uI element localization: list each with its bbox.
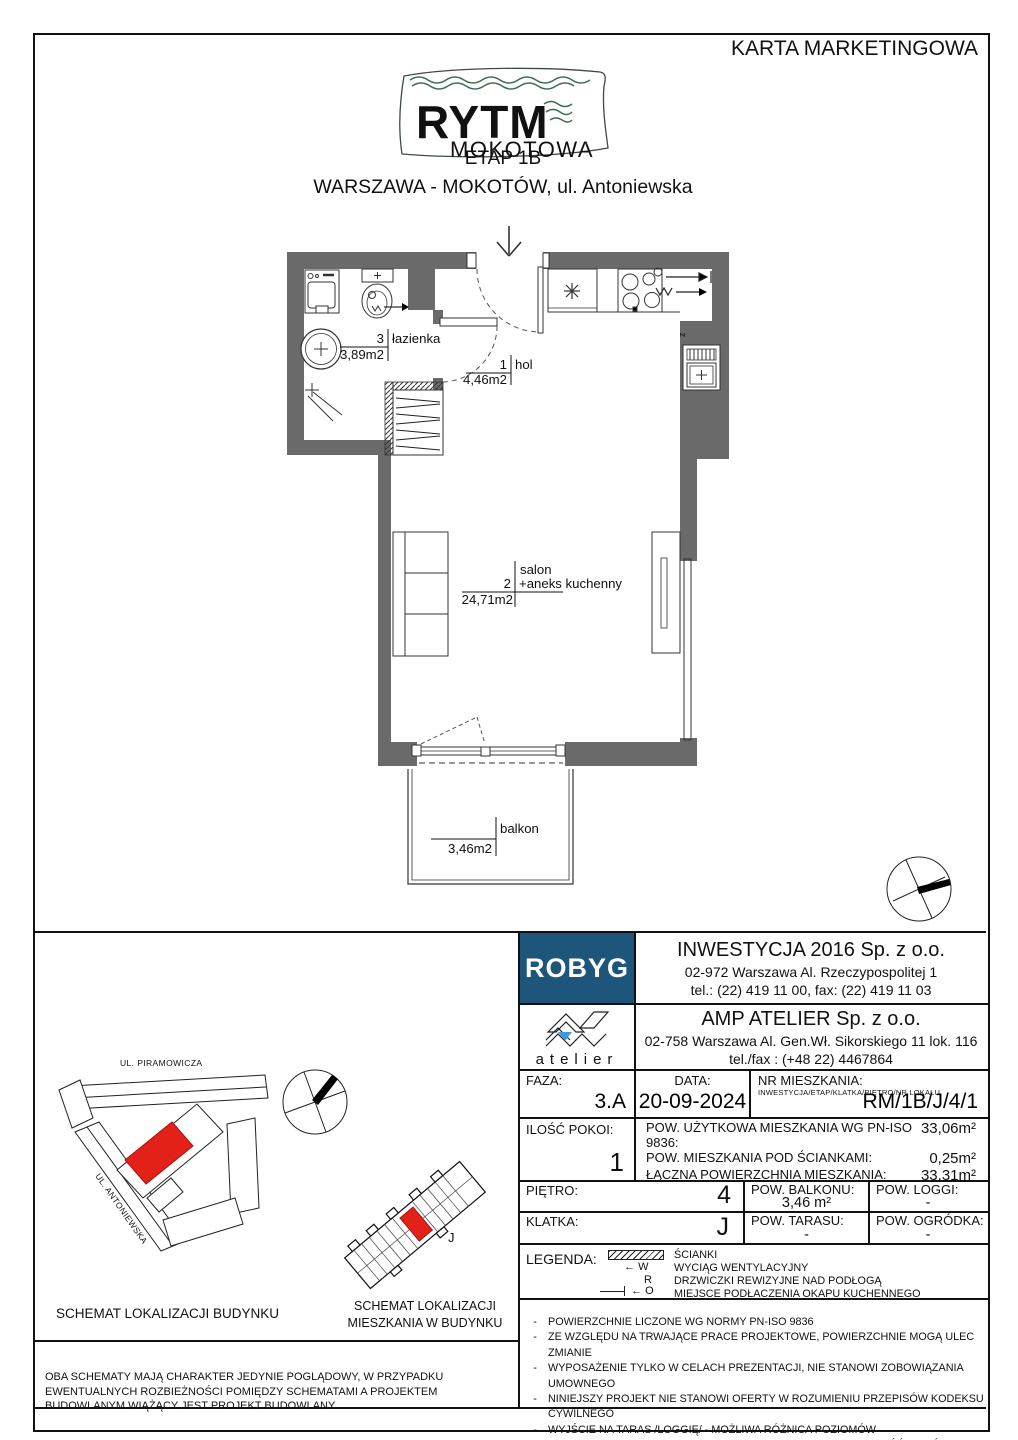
balkon-cell: POW. BALKONU: 3,46 m² <box>745 1180 868 1211</box>
legend-item-okap: MIEJSCE PODŁACZENIA OKAPU KUCHENNEGO <box>674 1288 921 1301</box>
architect-address: 02-758 Warszawa Al. Gen.Wł. Sikorskiego … <box>645 1033 978 1049</box>
entry-door-jamb <box>543 253 549 268</box>
hood-connection-icon <box>666 271 711 283</box>
nr-label: NR MIESZKANIA: <box>758 1073 863 1088</box>
hall-name: hol <box>515 357 533 372</box>
caption-flat-line2: MIESZKANIA W BUDYNKU <box>336 1315 514 1332</box>
note-item: -NINIEJSZY PROJEKT NIE STANOWI OFERTY W … <box>522 1392 984 1423</box>
hood-legend-icon: ← O <box>600 1285 654 1297</box>
caption-building-schematic: SCHEMAT LOKALIZACJI BUDYNKU <box>56 1306 336 1321</box>
entry-door-jamb <box>467 253 476 268</box>
area-usable-value: 33,06m² <box>921 1120 976 1150</box>
architect-phone: tel./fax : (+48 22) 4467864 <box>729 1051 893 1067</box>
kitchen-sink-icon <box>564 283 580 299</box>
note-item: -POWIERZCHNIE LICZONE WG NORMY PN-ISO 98… <box>522 1315 984 1330</box>
entry-door-leaf <box>538 267 543 333</box>
marketing-card-page: KARTA MARKETINGOWA RYTM MOKOTOWA ETAP 1B… <box>0 0 1018 1440</box>
street-label-piramowicza: UL. PIRAMOWICZA <box>120 1058 203 1068</box>
data-value: 20-09-2024 <box>636 1090 749 1114</box>
atelier-logo-icon <box>534 1006 620 1050</box>
bathroom-number: 3 <box>377 331 384 346</box>
balkon-value: 3,46 m² <box>745 1195 868 1211</box>
atelier-logo-text: atelier <box>536 1051 619 1068</box>
faza-cell: FAZA: 3.A <box>520 1069 634 1117</box>
ogrodek-label: POW. OGRÓDKA: <box>876 1213 984 1228</box>
ogrodek-cell: POW. OGRÓDKA: - <box>870 1211 986 1243</box>
page-title: KARTA MARKETINGOWA <box>731 37 978 61</box>
architect-info: AMP ATELIER Sp. z o.o. 02-758 Warszawa A… <box>636 1005 986 1069</box>
etap-label: ETAP 1B <box>300 148 706 170</box>
shower-icon <box>305 383 342 421</box>
salon-number: 2 <box>504 576 511 591</box>
balcony-railing <box>408 769 573 884</box>
developer-name: INWESTYCJA 2016 Sp. z o.o. <box>677 939 945 962</box>
hall-area: 4,46m2 <box>463 372 507 387</box>
legend-o-mark: O <box>645 1285 654 1297</box>
left-disclaimer-top-border <box>33 1340 520 1342</box>
toilet-icon <box>362 269 409 318</box>
klatka-cell: KLATKA: J <box>520 1211 743 1243</box>
klatka-label: KLATKA: <box>526 1214 579 1229</box>
wardrobe <box>652 532 680 653</box>
pietro-cell: PIĘTRO: 4 <box>520 1180 743 1211</box>
developer-address: 02-972 Warszawa Al. Rzeczypospolitej 1 <box>685 964 937 980</box>
room-labels <box>340 329 563 856</box>
balcony-door <box>412 717 565 756</box>
area-walls-value: 0,25m² <box>929 1150 976 1167</box>
notes: -POWIERZCHNIE LICZONE WG NORMY PN-ISO 98… <box>522 1315 984 1440</box>
loggia-value: - <box>870 1195 986 1211</box>
taras-cell: POW. TARASU: - <box>745 1211 868 1243</box>
shaft <box>385 382 443 455</box>
data-label: DATA: <box>636 1073 749 1088</box>
schematics-disclaimer: OBA SCHEMATY MAJĄ CHARAKTER JEDYNIE POGL… <box>45 1370 507 1414</box>
bathtub-icon <box>301 329 341 369</box>
klatka-value: J <box>717 1213 730 1242</box>
balcony-name: balkon <box>500 821 539 836</box>
rooms-label: ILOŚĆ POKOI: <box>526 1122 613 1137</box>
bathroom-name: łazienka <box>392 331 441 346</box>
rooms-cell: ILOŚĆ POKOI: 1 <box>520 1117 634 1180</box>
compass-icon <box>881 851 957 927</box>
legend: LEGENDA: ← W R ← O ŚCIANKI WYCIĄG WENTYL… <box>520 1243 986 1298</box>
loggia-cell: POW. LOGGI: - <box>870 1180 986 1211</box>
nr-value: RM/1B/J/4/1 <box>862 1090 978 1114</box>
balcony-area: 3,46m2 <box>448 841 492 856</box>
caption-flat-schematic: SCHEMAT LOKALIZACJI MIESZKANIA W BUDYNKU <box>336 1298 514 1332</box>
building-southeast-slab <box>163 1198 243 1246</box>
entry-arrow-icon <box>497 226 521 256</box>
atelier-logo: atelier <box>520 1005 634 1069</box>
note-item: -ZE WZGLĘDU NA TRWAJĄCE PRACE PROJEKTOWE… <box>522 1330 984 1361</box>
salon-name: salon <box>520 562 552 577</box>
ogrodek-value: - <box>870 1227 986 1243</box>
legend-label: LEGENDA: <box>526 1251 597 1267</box>
bathroom-area: 3,89m2 <box>340 347 384 362</box>
legend-item-drzwiczki: DRZWICZKI REWIZYJNE NAD PODŁOGĄ <box>674 1275 882 1288</box>
developer-phone: tel.: (22) 419 11 00, fax: (22) 419 11 0… <box>691 982 932 998</box>
areas-cell: POW. UŻYTKOWA MIESZKANIA WG PN-ISO 9836:… <box>636 1117 986 1180</box>
flat-location-schematic: J <box>330 1150 505 1295</box>
taras-value: - <box>745 1227 868 1243</box>
site-compass-icon <box>277 1064 353 1140</box>
location-label: WARSZAWA - MOKOTÓW, ul. Antoniewska <box>250 176 756 199</box>
shaft-mark: z <box>677 332 687 337</box>
washing-machine-icon <box>305 270 339 313</box>
salon-area: 24,71m2 <box>462 592 513 607</box>
legend-w-mark: W <box>638 1261 648 1273</box>
pietro-label: PIĘTRO: <box>526 1183 578 1198</box>
walls <box>287 252 729 766</box>
staircase-letter: J <box>448 1230 455 1245</box>
legend-item-wyciag: WYCIĄG WENTYLACYJNY <box>674 1262 808 1275</box>
faza-label: FAZA: <box>526 1073 562 1088</box>
caption-flat-line1: SCHEMAT LOKALIZACJI <box>336 1298 514 1315</box>
walls-legend-icon <box>608 1250 664 1260</box>
salon-name2: +aneks kuchenny <box>519 576 622 591</box>
area-walls-label: POW. MIESZKANIA POD ŚCIANKAMI: <box>646 1150 872 1167</box>
salon-window <box>684 559 691 740</box>
floor-plan: z <box>283 218 763 932</box>
robyg-logo: ROBYG <box>520 933 634 1003</box>
area-usable-label: POW. UŻYTKOWA MIESZKANIA WG PN-ISO 9836: <box>646 1120 921 1150</box>
rooms-value: 1 <box>610 1147 624 1178</box>
note-item: -WYJŚCIE NA TARAS /LOGGIĘ/ - MOŻLIWA RÓŻ… <box>522 1423 984 1438</box>
taras-label: POW. TARASU: <box>751 1213 844 1228</box>
hall-number: 1 <box>500 357 507 372</box>
legend-item-scianki: ŚCIANKI <box>674 1249 717 1262</box>
architect-name: AMP ATELIER Sp. z o.o. <box>701 1008 920 1031</box>
developer-info: INWESTYCJA 2016 Sp. z o.o. 02-972 Warsza… <box>636 933 986 1003</box>
faza-value: 3.A <box>594 1090 626 1114</box>
bathroom-door-leaf <box>440 318 497 326</box>
vent-legend-icon: ← W <box>624 1261 648 1273</box>
sofa <box>393 532 448 656</box>
stove-icon <box>618 268 662 312</box>
robyg-logo-text: ROBYG <box>525 953 629 984</box>
data-cell: DATA: 20-09-2024 <box>636 1069 749 1117</box>
fridge-niche <box>683 345 720 390</box>
note-item: -WYPOSAŻENIE TYLKO W CELACH PREZENTACJI,… <box>522 1361 984 1392</box>
nr-cell: NR MIESZKANIA: INWESTYCJA/ETAP/KLATKA/PI… <box>751 1069 986 1117</box>
pietro-value: 4 <box>717 1181 731 1210</box>
vent-connection-icon <box>656 288 707 296</box>
